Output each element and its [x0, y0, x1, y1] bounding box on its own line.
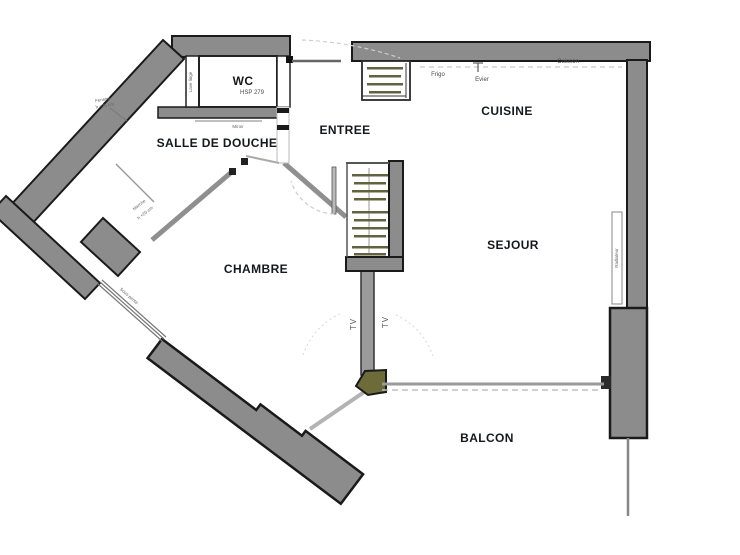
door-jamb — [229, 168, 236, 175]
door-jamb — [277, 108, 289, 113]
room-label-salle-de-douche: SALLE DE DOUCHE — [157, 136, 278, 150]
kitchen-cabinet — [362, 61, 410, 100]
room-label-wc: WC — [233, 74, 254, 88]
floor-plan-page: WC HSP 279 SALLE DE DOUCHE ENTREE CUISIN… — [0, 0, 740, 555]
slope-line — [100, 282, 164, 339]
room-label-entree: ENTREE — [319, 123, 370, 137]
douche-slope-line — [116, 164, 154, 202]
floor-plan: WC HSP 279 SALLE DE DOUCHE ENTREE CUISIN… — [0, 0, 740, 555]
door-jamb — [241, 158, 248, 165]
hanger-bars — [352, 174, 388, 256]
room-label-sejour: SEJOUR — [487, 238, 539, 252]
closet-right-wall — [389, 161, 403, 261]
tv-swing-arc — [396, 315, 433, 356]
annotation-laundry: Lave linge — [188, 71, 193, 92]
shelf-bar — [369, 75, 401, 78]
slope-line — [102, 280, 166, 337]
annotation-radiator: Radiateur — [614, 248, 619, 268]
wall-chevron-lower — [0, 196, 100, 299]
shelf-bar — [367, 67, 403, 70]
annotation-sink: Evier — [475, 77, 489, 83]
shelf-bar — [367, 83, 403, 86]
wall-tv — [361, 271, 374, 375]
annotation-slope: Sous pente — [119, 287, 140, 306]
annotation-tv-left: TV — [349, 318, 358, 330]
wall-chevron-upper — [8, 40, 184, 227]
wc-right-wall — [277, 56, 290, 107]
annotation-mirror: Miroir — [232, 124, 244, 129]
chambre-door-leaf — [332, 167, 336, 214]
douche-door-wall — [277, 107, 289, 163]
wall-right-upper — [627, 60, 647, 310]
annotation-cooktop: Cuisson — [557, 59, 579, 65]
wall-chambre-douche — [152, 170, 234, 240]
annotation-tv-right: TV — [381, 316, 390, 328]
wall-entree-chambre — [284, 163, 346, 217]
closet-bottom-wall — [346, 257, 403, 271]
room-label-chambre: CHAMBRE — [224, 262, 288, 276]
wall-wc-top — [172, 36, 290, 57]
douche-door-leaf — [246, 156, 279, 163]
wall-pocket-tab — [81, 218, 140, 276]
wall-top-kitchen — [352, 42, 650, 61]
balcony-left-railing — [310, 388, 370, 429]
wall-right-lower — [610, 308, 647, 438]
door-hinge — [286, 56, 293, 63]
annotation-wc-height: HSP 279 — [240, 90, 265, 96]
door-jamb — [277, 125, 289, 130]
wall-douche-top — [158, 107, 280, 118]
annotation-fridge: Frigo — [431, 72, 445, 78]
shelf-bar — [369, 91, 401, 94]
room-label-cuisine: CUISINE — [481, 104, 532, 118]
tv-swing-arc — [303, 313, 342, 355]
room-label-balcon: BALCON — [460, 431, 514, 445]
